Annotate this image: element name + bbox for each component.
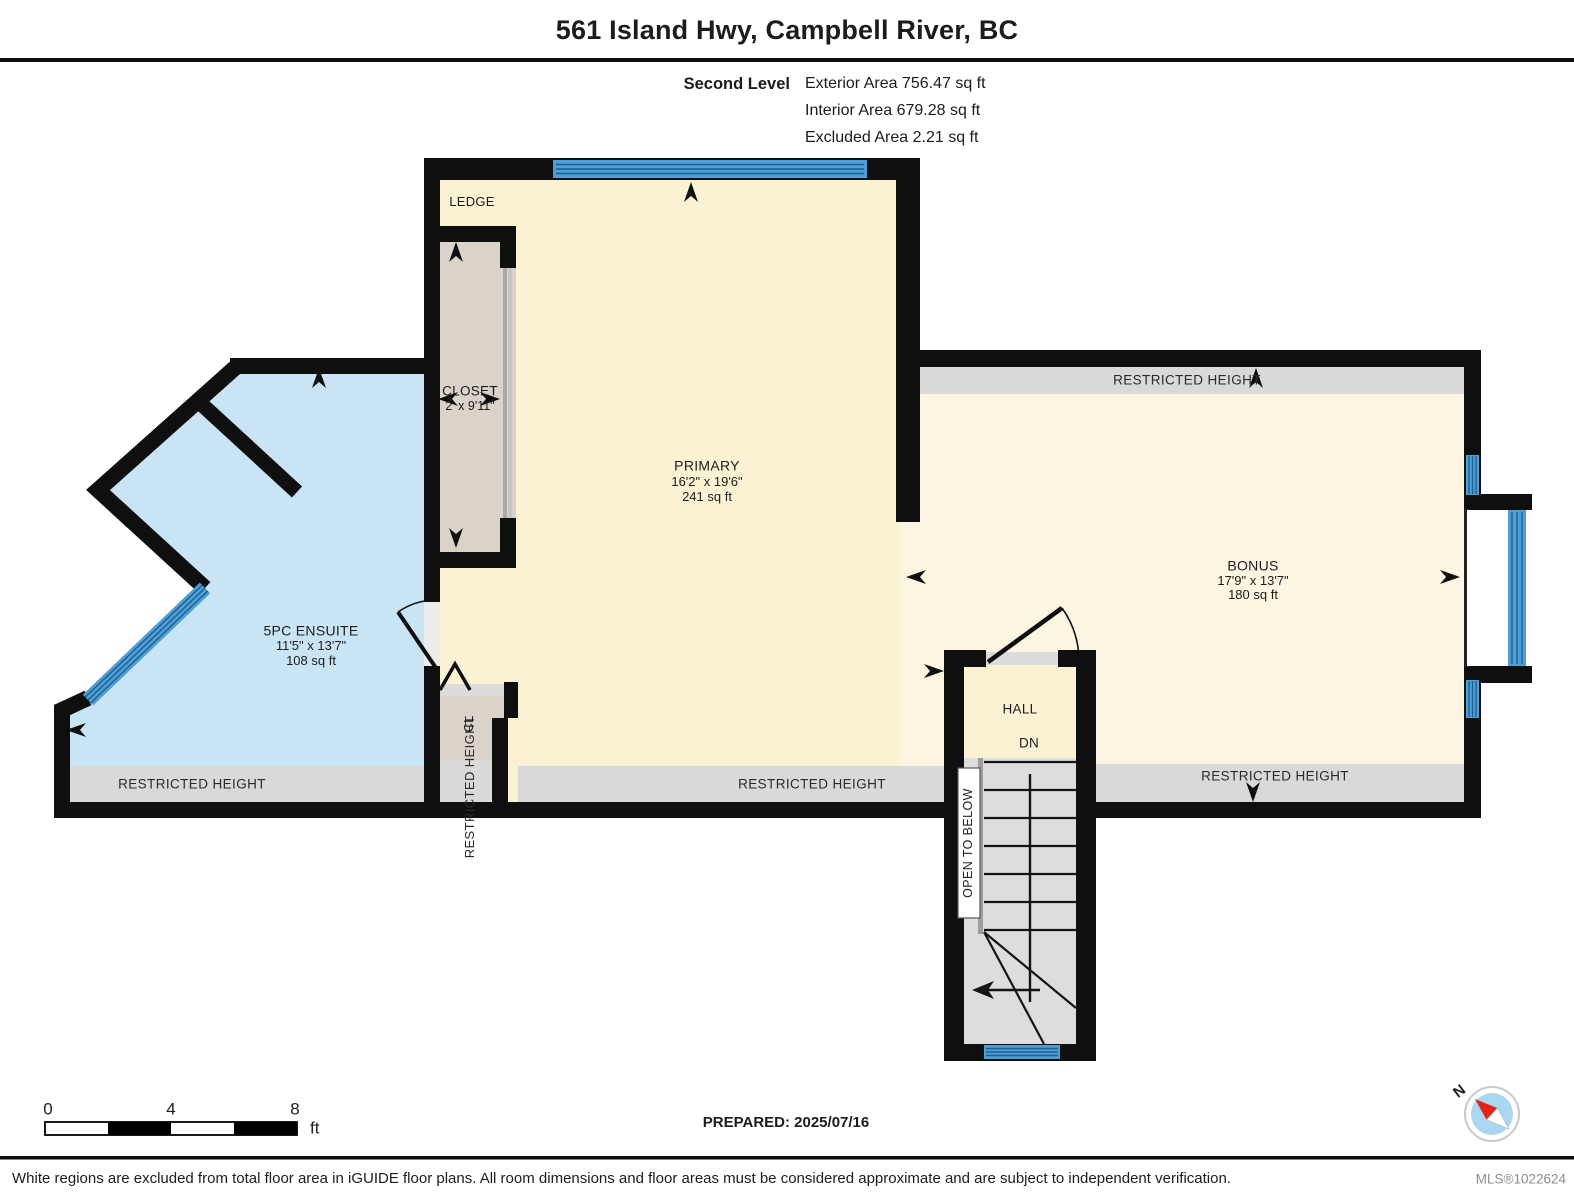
restricted-height-primary: RESTRICTED HEIGHT <box>738 778 886 793</box>
floorplan-page: 561 Island Hwy, Campbell River, BC Secon… <box>0 0 1574 1200</box>
scale-bar <box>45 1122 297 1135</box>
cl-label: CL <box>462 716 476 733</box>
down-label: DN <box>1019 737 1039 752</box>
closet-label: CLOSET <box>442 385 498 400</box>
disclaimer-text: White regions are excluded from total fl… <box>12 1171 1231 1188</box>
scale-tick-0: 0 <box>43 1101 52 1120</box>
primary-dims: 16'2" x 19'6" <box>671 475 742 489</box>
floorplan-drawing <box>0 0 1574 1200</box>
restricted-height-ensuite: RESTRICTED HEIGHT <box>118 778 266 793</box>
scale-tick-4: 4 <box>166 1101 175 1120</box>
interior-area-label: Interior Area 679.28 sq ft <box>805 102 980 120</box>
hall-label: HALL <box>1003 703 1038 718</box>
prepared-date: PREPARED: 2025/07/16 <box>703 1115 869 1132</box>
ensuite-area: 108 sq ft <box>286 654 336 668</box>
ensuite-room-fill <box>60 366 437 812</box>
bonus-area: 180 sq ft <box>1228 588 1278 602</box>
restricted-height-bonus-top: RESTRICTED HEIGHT <box>1113 374 1261 389</box>
compass-icon <box>1465 1087 1519 1141</box>
primary-label: PRIMARY <box>674 458 740 473</box>
scale-unit: ft <box>310 1120 319 1139</box>
ensuite-label: 5PC ENSUITE <box>263 623 358 638</box>
scale-tick-8: 8 <box>290 1101 299 1120</box>
ensuite-dims: 11'5" x 13'7" <box>276 639 346 653</box>
bonus-window-upper <box>1466 455 1479 495</box>
page-title: 561 Island Hwy, Campbell River, BC <box>556 16 1018 46</box>
level-label: Second Level <box>684 75 790 93</box>
bay-window-glass <box>1508 510 1526 666</box>
primary-area: 241 sq ft <box>682 490 732 504</box>
header-divider <box>0 58 1574 62</box>
stairwell-window <box>984 1045 1060 1059</box>
excluded-area-label: Excluded Area 2.21 sq ft <box>805 129 978 147</box>
restricted-height-bonus-bottom: RESTRICTED HEIGHT <box>1201 770 1349 785</box>
mls-number: MLS®1022624 <box>1476 1173 1566 1188</box>
room-fills <box>60 166 1472 1056</box>
ledge-label: LEDGE <box>449 195 495 209</box>
bonus-window-lower <box>1466 680 1479 718</box>
primary-window <box>553 160 867 178</box>
open-to-below-label: OPEN TO BELOW <box>962 788 976 898</box>
closet-dims: 2' x 9'11" <box>445 400 494 414</box>
cl-door-opening <box>440 684 504 696</box>
exterior-area-label: Exterior Area 756.47 sq ft <box>805 75 986 93</box>
restricted-height-cl: RESTRICTED HEIGHT <box>463 716 477 859</box>
footer-divider <box>0 1156 1574 1160</box>
bonus-label: BONUS <box>1227 558 1278 573</box>
